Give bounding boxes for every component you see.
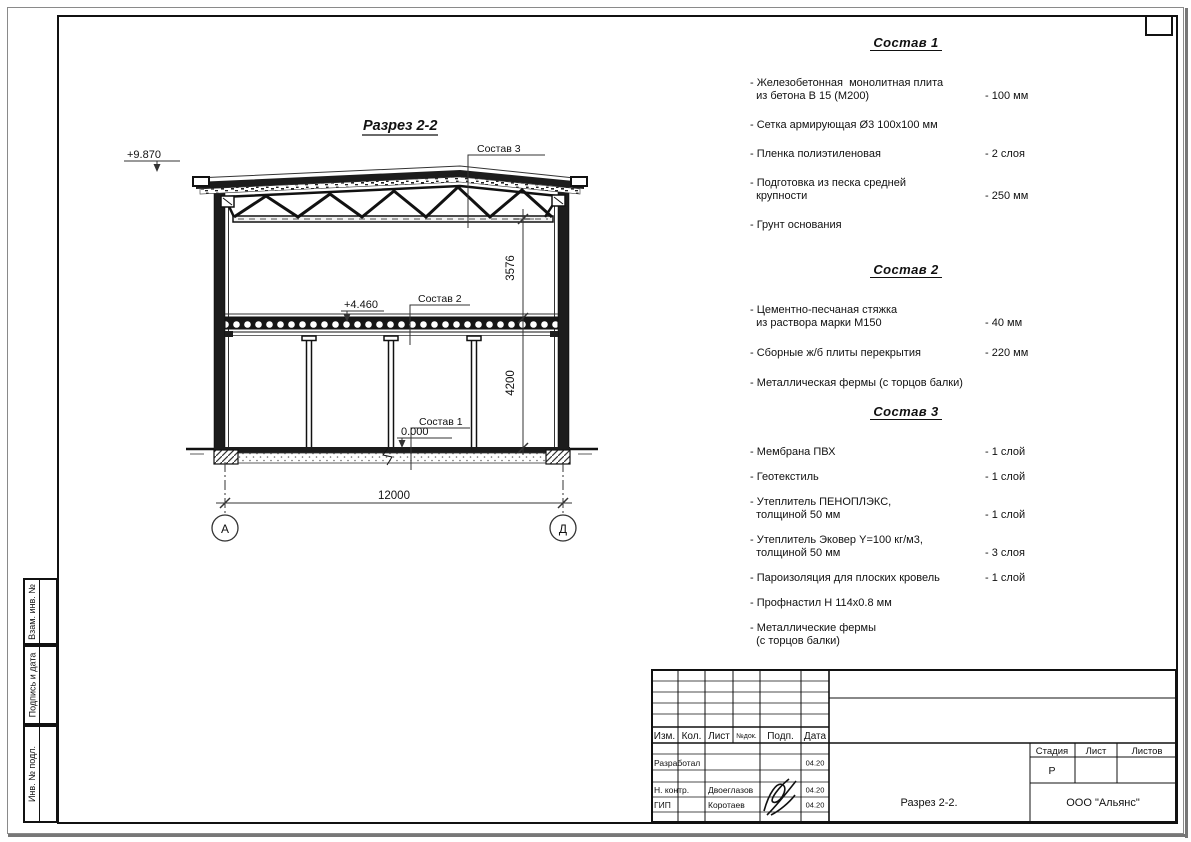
item-name: - Металлическая фермы (с торцов балки)	[750, 377, 1062, 390]
list-item: - Геотекстиль - 1 слой	[750, 471, 1062, 484]
column	[302, 336, 316, 447]
list-item: - Цементно-песчаная стяжка из раствора м…	[750, 304, 1062, 330]
item-value: - 220 мм	[985, 347, 1028, 360]
floor-slab	[225, 314, 558, 337]
list-item: - Утеплитель ПЕНОПЛЭКС, толщиной 50 мм -…	[750, 496, 1062, 522]
stage-value: Р	[1048, 765, 1055, 777]
composition-2-title: Состав 2	[870, 263, 941, 278]
col-ndok: №док.	[736, 733, 757, 740]
composition-list-2: Состав 2 - Цементно-песчаная стяжка из р…	[750, 263, 1062, 407]
row2-name: Двоеглазов	[708, 785, 754, 795]
item-value: - 250 мм	[985, 190, 1028, 203]
title-block-grid: Изм. Кол. Лист №док. Подп. Дата Разработ…	[651, 669, 1177, 823]
sheet-label: Лист	[1086, 746, 1107, 757]
list-item: - Пароизоляция для плоских кровель - 1 с…	[750, 572, 1062, 585]
roof-edge-cap-left	[193, 177, 209, 186]
composition-list-3: Состав 3 - Мембрана ПВХ - 1 слой - Геоте…	[750, 405, 1062, 660]
item-name: - Сетка армирующая Ø3 100х100 мм	[750, 119, 1062, 132]
dim-floor-height-label: 4200	[505, 370, 517, 396]
doc-title: Разрез 2-2.	[900, 797, 957, 809]
axis-left-label: А	[221, 522, 229, 536]
col-izm: Изм.	[654, 731, 675, 742]
row3-role: ГИП	[654, 800, 671, 810]
item-value: - 100 мм	[985, 90, 1028, 103]
item-value: - 1 слой	[985, 572, 1025, 585]
dim-truss-height-label: 3576	[505, 255, 517, 281]
roof-edge-cap-right	[571, 177, 587, 186]
col-list: Лист	[708, 731, 730, 742]
title-block: Изм. Кол. Лист №док. Подп. Дата Разработ…	[651, 669, 1177, 823]
item-name: - Профнастил Н 114х0.8 мм	[750, 597, 1062, 610]
column	[384, 336, 398, 447]
drawing-sheet: Взам. инв. № Подпись и дата Инв. № подл.	[0, 0, 1191, 842]
list-item: - Утеплитель Эковер Y=100 кг/м3, толщино…	[750, 534, 1062, 560]
row3-date: 04.20	[806, 801, 825, 810]
list-item: - Металлическая фермы (с торцов балки)	[750, 377, 1062, 390]
list-item: - Железобетонная монолитная плита из бет…	[750, 77, 1062, 103]
composition-3-title: Состав 3	[870, 405, 941, 420]
elevation-marks	[124, 161, 452, 448]
roof-truss	[221, 186, 565, 222]
item-value: - 2 слоя	[985, 148, 1025, 161]
list-item: - Грунт основания	[750, 219, 1062, 232]
sheets-label: Листов	[1132, 746, 1163, 757]
item-name: - Металлические фермы (с торцов балки)	[750, 622, 1062, 648]
composition-1-title: Состав 1	[870, 36, 941, 51]
wall-corbel-left	[225, 331, 233, 337]
callout-sostav1-label: Состав 1	[419, 416, 463, 428]
row3-name: Коротаев	[708, 800, 745, 810]
list-item: - Мембрана ПВХ - 1 слой	[750, 446, 1062, 459]
item-value: - 1 слой	[985, 446, 1025, 459]
col-kol: Кол.	[682, 731, 702, 742]
wall-corbel-right	[550, 331, 558, 337]
section-title: Разрез 2-2	[363, 118, 437, 134]
composition-list-1: Состав 1 - Железобетонная монолитная пли…	[750, 36, 1062, 248]
callout-sostav3-label: Состав 3	[477, 143, 521, 155]
elevation-roof-label: +9.870	[127, 149, 161, 161]
list-item: - Профнастил Н 114х0.8 мм	[750, 597, 1062, 610]
row2-date: 04.20	[806, 786, 825, 795]
ground-floor	[186, 447, 598, 465]
callout-sostav2-label: Состав 2	[418, 293, 462, 305]
column	[467, 336, 481, 447]
item-name: - Грунт основания	[750, 219, 1062, 232]
list-item: - Сборные ж/б плиты перекрытия - 220 мм	[750, 347, 1062, 360]
elevation-floor2-label: +4.460	[344, 299, 378, 311]
row2-role: Н. контр.	[654, 785, 689, 795]
list-item: - Металлические фермы (с торцов балки)	[750, 622, 1062, 648]
col-podp: Подп.	[767, 731, 794, 742]
footing-left	[214, 450, 238, 464]
item-value: - 40 мм	[985, 317, 1022, 330]
col-data: Дата	[804, 731, 827, 742]
columns	[302, 336, 481, 447]
row1-date: 04.20	[806, 759, 825, 768]
list-item: - Подготовка из песка средней крупности …	[750, 177, 1062, 203]
list-item: - Сетка армирующая Ø3 100х100 мм	[750, 119, 1062, 132]
stage-label: Стадия	[1036, 746, 1068, 757]
list-item: - Пленка полиэтиленовая - 2 слоя	[750, 148, 1062, 161]
item-value: - 1 слой	[985, 471, 1025, 484]
dim-span-label: 12000	[378, 490, 410, 502]
axis-right-label: Д	[559, 522, 567, 536]
item-value: - 1 слой	[985, 509, 1025, 522]
footing-right	[546, 450, 570, 464]
row1-role: Разработал	[654, 758, 700, 768]
item-value: - 3 слоя	[985, 547, 1025, 560]
company-name: ООО "Альянс"	[1066, 797, 1140, 809]
